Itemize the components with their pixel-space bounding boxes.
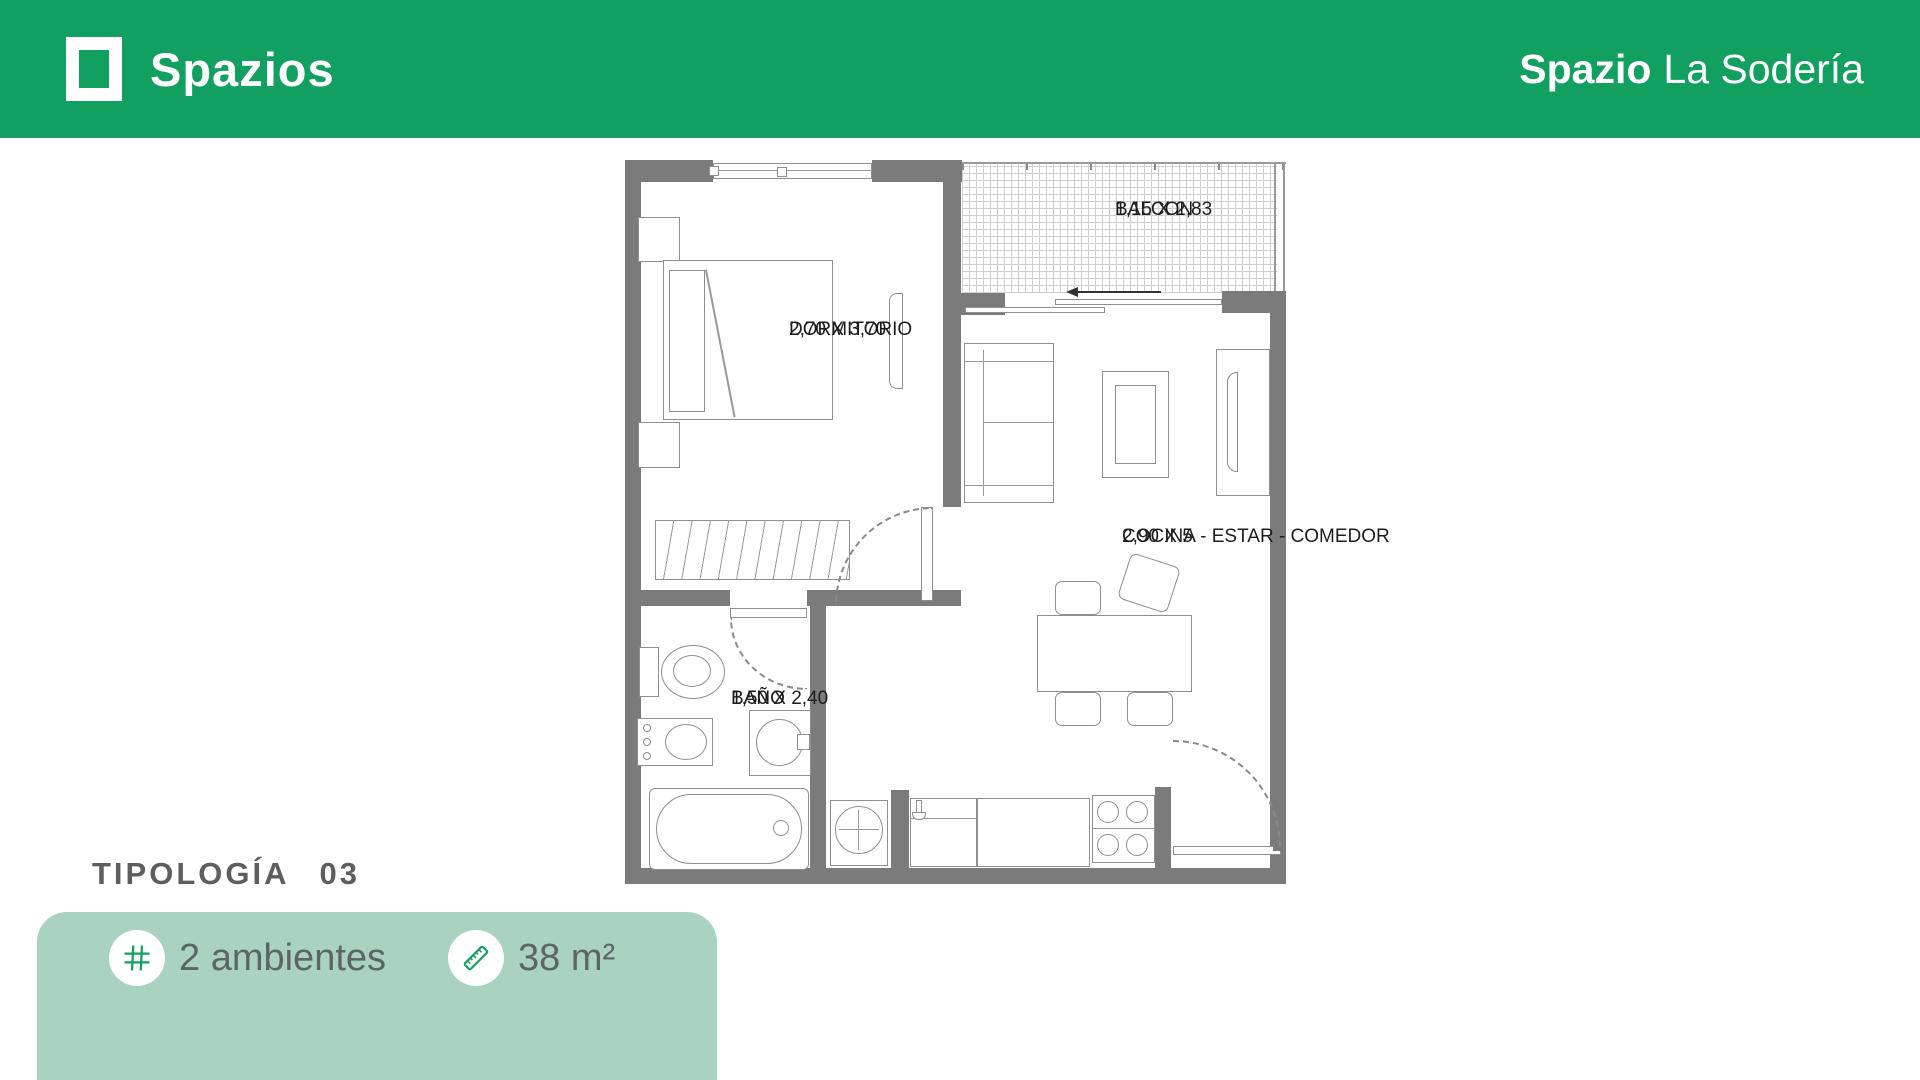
dining-chair [1055, 581, 1101, 615]
closet [655, 520, 850, 580]
dining-table [1037, 615, 1192, 692]
window-mullion [777, 167, 787, 177]
grid-icon [109, 930, 165, 986]
typology-number: 03 [320, 856, 360, 892]
room-dims: 1,15 X 2,83 [1115, 198, 1212, 221]
feature-card: 2 ambientes 38 m² [37, 912, 717, 1080]
sofa-armrest-line [964, 361, 1054, 362]
room-dims: 1,50 X 2,40 [731, 687, 828, 710]
bed-pillow [669, 270, 705, 412]
coffee-table-inner [1115, 385, 1156, 464]
wall [625, 868, 1286, 884]
wall [625, 160, 713, 182]
dining-chair [1127, 692, 1173, 726]
wall [810, 606, 826, 884]
dining-chair-tilted [1117, 552, 1181, 614]
sofa [964, 343, 1054, 503]
wall [943, 160, 961, 507]
nightstand [638, 217, 680, 262]
header: Spazios SpazioLa Sodería [0, 0, 1920, 138]
ruler-icon [448, 930, 504, 986]
washbasin-faucet [797, 734, 810, 750]
bathroom-door-leaf [730, 608, 807, 618]
balcony-railing-right [1274, 162, 1276, 293]
feature-label: 38 m² [518, 937, 615, 980]
window-mullion [709, 166, 719, 176]
wall [1155, 787, 1171, 884]
typology-word: TIPOLOGÍA [92, 856, 290, 892]
kitchen-counter [977, 798, 1090, 867]
bidet-tap [643, 724, 651, 732]
wall [1270, 295, 1286, 884]
entry-door-swing-arc [1173, 740, 1281, 848]
bathroom-door-swing-arc [730, 618, 807, 690]
washing-machine-cross [839, 829, 879, 830]
brand-name: Spazios [150, 42, 335, 97]
dining-chair [1055, 692, 1101, 726]
bedroom-window-mullion-line [713, 170, 872, 171]
stove-burner [1097, 834, 1119, 856]
balcony-railing-right-outer [1283, 162, 1285, 293]
brand: Spazios [66, 37, 335, 101]
bedroom-tv-panel [889, 293, 903, 389]
balcony-railing-ticks [962, 164, 1286, 170]
stove-divider [1092, 828, 1155, 829]
sliding-door-panel [1055, 299, 1222, 305]
page: Spazios SpazioLa Sodería [0, 0, 1920, 1080]
bidet-tap [643, 738, 651, 746]
floor-plan: DORMITORIO 2,70 X 3,70 BALCON 1,15 X 2,8… [625, 160, 1286, 884]
bidet-tap [643, 752, 651, 760]
stove-burner [1097, 801, 1119, 823]
room-dims: 2,70 X 3,70 [789, 318, 886, 341]
sliding-door-arrow-line [1077, 291, 1161, 293]
sliding-door-panel [965, 307, 1105, 313]
toilet-bowl-inner [673, 655, 711, 687]
typology-title: TIPOLOGÍA 03 [92, 856, 360, 892]
sliding-door-arrow-icon [1066, 287, 1078, 297]
washing-machine-drum [835, 806, 883, 854]
wall [891, 790, 909, 884]
project-title: SpazioLa Sodería [1519, 46, 1864, 93]
bathtub-faucet [773, 820, 789, 836]
spazios-logo-icon [66, 37, 122, 101]
tv-unit [1216, 349, 1270, 496]
feature-list: 2 ambientes 38 m² [37, 912, 717, 986]
nightstand [638, 422, 680, 468]
wall [625, 590, 730, 606]
room-dims: 2,90 X 5 [1122, 525, 1193, 548]
sofa-back-line [983, 350, 984, 496]
wall [625, 160, 641, 884]
project-title-bold: Spazio [1519, 46, 1651, 92]
stove-burner [1126, 834, 1148, 856]
washbasin-bowl [756, 719, 803, 766]
sofa-seat-line [983, 422, 1053, 423]
feature-label: 2 ambientes [179, 937, 386, 980]
sofa-armrest-line [964, 485, 1054, 486]
bidet-bowl [665, 724, 707, 760]
tv-screen [1227, 372, 1238, 472]
balcony-floor-hatch [962, 162, 1277, 293]
bedroom-window [713, 163, 872, 179]
washing-machine-cross [858, 810, 859, 850]
feature-superficie: 38 m² [448, 930, 615, 986]
project-title-rest: La Sodería [1663, 46, 1864, 92]
feature-ambientes: 2 ambientes [109, 930, 386, 986]
toilet-tank [639, 647, 659, 697]
stove-burner [1126, 801, 1148, 823]
